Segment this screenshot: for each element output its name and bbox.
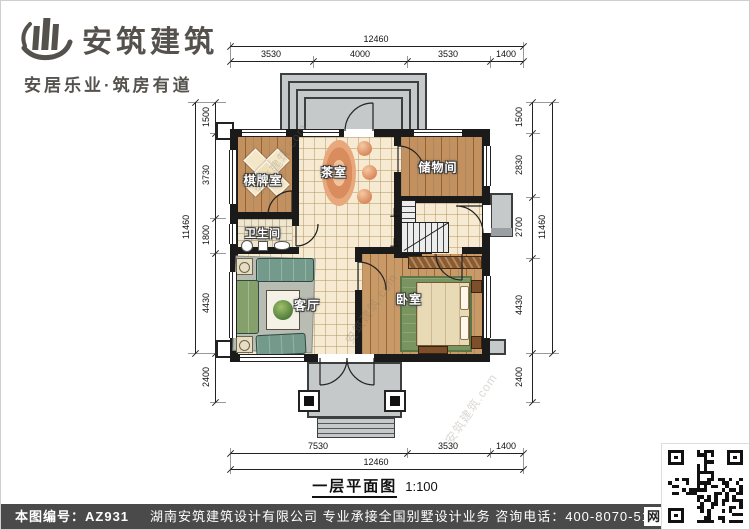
footer-bar: 本图编号：AZ931 湖南安筑建筑设计有限公司 专业承接全国别墅设计业务 咨询电… [0,504,750,530]
dim-label: 3530 [437,49,459,59]
sink [274,241,290,250]
wall-bedroom-left [355,254,362,262]
dim-line-bottom-segments [230,453,523,454]
dim-label: 1500 [201,106,211,128]
logo-buildings-icon [18,10,76,67]
door-gap-side [483,205,491,233]
room-label-bath: 卫生间 [245,225,281,241]
dim-line-right-total [552,102,553,353]
dim-label: 2700 [514,216,524,238]
dim-label: 12460 [362,34,389,44]
dim-label: 2400 [514,366,524,388]
room-label-living: 客厅 [294,297,320,314]
dim-label: 3530 [260,49,282,59]
nightstand [471,336,482,349]
entry-steps [317,418,395,438]
wall-chess-bath [230,212,299,219]
dim-line-top-total [230,46,523,47]
porch-column [298,390,320,412]
dim-line-bottom-total [230,469,523,470]
window-living-left [229,272,237,338]
window-storage-right [483,146,491,186]
plan-scale: 1:100 [405,479,438,494]
dim-label: 1500 [514,106,524,128]
tea-stool [357,189,372,204]
sofa-two-seat [235,280,259,334]
stair-up-label: 上 [390,206,399,219]
pillow [460,316,469,340]
dim-label: 1400 [495,441,517,451]
dim-label: 11460 [537,214,547,240]
top-terrace-floor [304,97,403,133]
qr-code [661,443,750,530]
dim-label: 12460 [362,457,389,467]
logo-title: 安筑建筑 [82,17,218,61]
bed-end-bench [418,346,448,354]
plant [273,300,293,320]
doc-number: 本图编号：AZ931 [15,504,129,530]
wall-bedroom-top [462,247,490,254]
side-table [236,336,253,353]
window-chess-top [242,129,286,137]
dim-label: 4000 [349,49,371,59]
bath-fixture [258,241,268,251]
wall-bath-stub [292,219,299,226]
side-step [488,339,506,355]
logo-tagline: 安居乐业·筑房有道 [24,71,248,96]
window-bedroom-right [483,276,491,338]
stair-up-label: 上 [390,236,399,249]
wardrobe [408,256,482,269]
dim-line-right-segments [532,102,533,402]
qr-modules [668,450,743,523]
window-bath-left [229,224,237,244]
dim-label: 4430 [201,292,211,314]
dim-label: 7530 [307,441,329,451]
toilet [241,240,253,252]
door-gap-terrace [344,129,374,137]
dim-label: 3730 [201,164,211,186]
dim-label: 11460 [181,214,191,240]
watermark-text: 安筑建筑.com [441,370,501,448]
tea-stool [362,165,377,180]
pillow [460,286,469,310]
plan-title-row: 一层平面图1:100 [0,475,750,496]
side-platform-edge [491,228,512,236]
window-living-bottom [240,354,304,362]
dim-label: 1400 [495,49,517,59]
company-logo: 安筑建筑 安居乐业·筑房有道 [18,10,248,96]
porch-column [384,390,406,412]
room-label-storage: 储物间 [418,159,457,176]
dim-label: 2400 [201,366,211,388]
window-storage-top [414,129,462,137]
dim-line-top-segments [230,61,523,62]
plan-title: 一层平面图 [312,478,397,498]
sofa-three-seat [256,258,314,282]
company-info: 湖南安筑建筑设计有限公司 专业承接全国别墅设计业务 咨询电话：400-8070-… [150,504,657,530]
window-chess-left [229,150,237,204]
sofa-arm-chair [255,333,306,357]
dim-label: 2830 [514,154,524,176]
tea-stool [357,141,372,156]
room-label-bedroom: 卧室 [396,291,422,308]
wall-storage-left [394,137,401,146]
dim-label: 1800 [201,224,211,246]
room-label-tea: 茶室 [321,164,347,181]
dim-label: 4430 [514,294,524,316]
door-gap-entry [318,354,374,362]
dim-line-left-total [195,102,196,353]
nightstand [471,280,482,293]
side-table [236,258,253,275]
